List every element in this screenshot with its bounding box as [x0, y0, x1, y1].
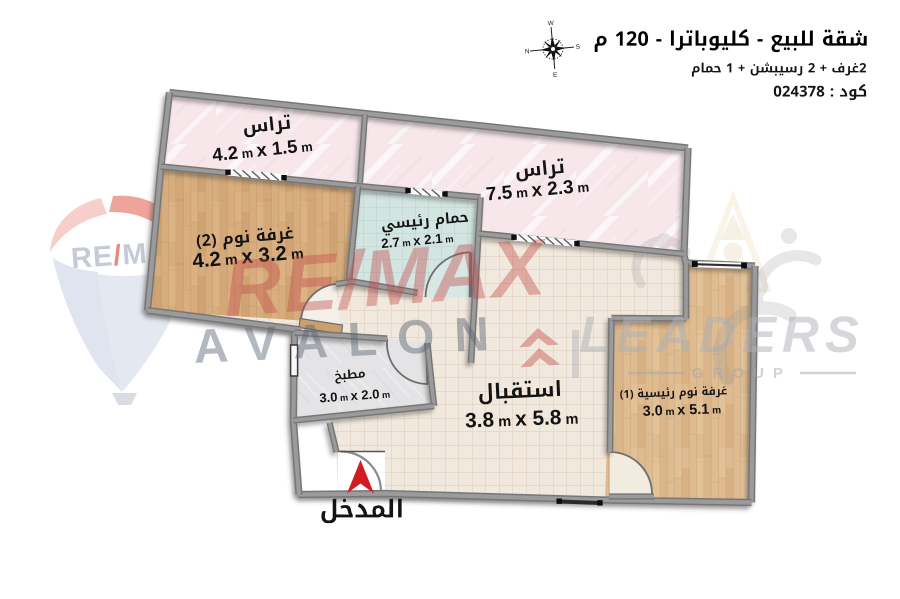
svg-text:GROUP: GROUP — [692, 365, 792, 382]
svg-text:N: N — [524, 48, 530, 55]
